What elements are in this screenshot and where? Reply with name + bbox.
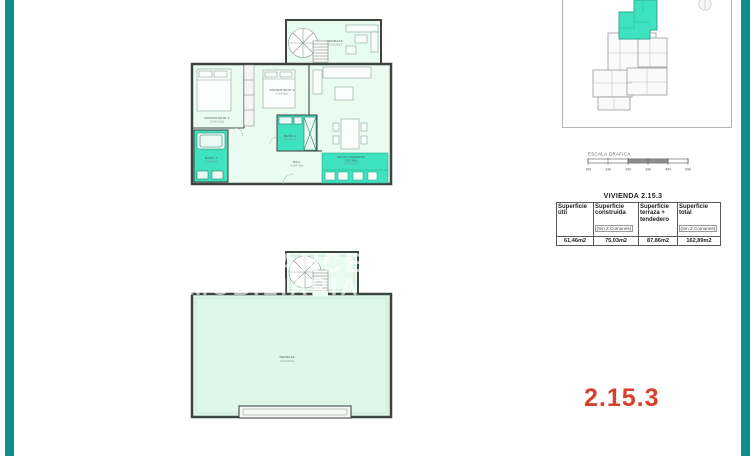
col3-value: 162,89m2 [678, 236, 721, 245]
col3-note: (Sin Z.Comunes) [679, 225, 717, 232]
terrace-area: S.U=74.01m2 [280, 361, 295, 363]
svg-text:2M: 2M [625, 167, 630, 172]
svg-text:5M: 5M [685, 167, 690, 172]
table-header-row: Superficie útil Superficie construida (S… [557, 203, 721, 237]
header-cell: Superficie útil [557, 203, 594, 237]
apartment-floor-plan: TERRAZA S.U=13.85m2 [183, 12, 398, 190]
col3-label: Superficie total [679, 204, 719, 217]
unit-number-label: 2.15.3 [584, 384, 660, 413]
table-value-row: 61,46m2 75,03m2 87,86m2 162,89m2 [557, 236, 721, 245]
salon-area: S.U=24.24m2 [344, 163, 359, 165]
header-cell: Superficie construida (Sin Z.Comunes) [594, 203, 639, 237]
surface-table-block: VIVIENDA 2.15.3 Superficie útil Superfic… [556, 193, 710, 246]
roof-terrace-area: S.U=13.85m2 [328, 45, 343, 47]
graphic-scale: ESCALA GRAFICA 0M 1M 2M 3M 4M 5M [586, 149, 698, 177]
col1-note: (Sin Z.Comunes) [595, 225, 633, 232]
bano1-label: BAÑO 1 [205, 155, 218, 160]
scale-tick-labels: 0M 1M 2M 3M 4M 5M [586, 167, 691, 172]
header-cell: Superficie terraza + tendedero [639, 203, 678, 237]
dormitorio2-label: DORMITORIO 2 [269, 88, 294, 92]
roof-terrace-label: TERRAZA [327, 39, 344, 43]
straight-stair-icon [313, 41, 328, 62]
col0-label: Superficie útil [558, 204, 592, 217]
surface-table: Superficie útil Superficie construida (S… [556, 202, 721, 246]
wardrobe-icon [244, 65, 254, 126]
col0-value: 61,46m2 [557, 236, 594, 245]
planter-icon [239, 406, 351, 418]
svg-text:0M: 0M [586, 167, 591, 172]
bano2-label: BAÑO 2 [284, 133, 297, 138]
right-teal-border [741, 0, 750, 456]
scale-title: ESCALA GRAFICA [588, 152, 631, 157]
key-plan [562, 0, 732, 128]
terrace-label: TERRAZA [279, 355, 296, 359]
left-teal-border [5, 0, 14, 456]
floor-plan-sheet: TERRAZA S.U=13.85m2 [0, 0, 756, 456]
dormitorio1-label: DORMITORIO 1 [204, 116, 229, 120]
dormitorio2-area: S.U=9.08m2 [276, 94, 290, 96]
hall-label: HALL [293, 160, 302, 164]
stair-opening [313, 291, 328, 296]
col1-label: Superficie construida [595, 204, 637, 217]
hall-area: S.U=4.76m2 [291, 166, 305, 168]
col2-label: Superficie terraza + tendedero [640, 204, 676, 223]
salon-label2: COCINA [345, 158, 357, 162]
roof-terrace-plan: TERRAZA S.U=74.01m2 [183, 248, 395, 426]
col2-value: 87,86m2 [639, 236, 678, 245]
svg-text:3M: 3M [645, 167, 650, 172]
svg-text:4M: 4M [665, 167, 670, 172]
table-title: VIVIENDA 2.15.3 [556, 193, 710, 200]
north-indicator-icon [699, 0, 711, 10]
col1-value: 75,03m2 [594, 236, 639, 245]
bano1-area: S.U=4.44m2 [205, 162, 219, 164]
dormitorio1-area: S.U=14.01m2 [210, 122, 225, 124]
straight-stair-icon [313, 270, 328, 294]
header-cell: Superficie total (Sin Z.Comunes) [678, 203, 721, 237]
dormitorio1-bed-icon [197, 69, 231, 111]
svg-text:1M: 1M [605, 167, 610, 172]
bano2-area: S.U=4.07m2 [284, 140, 298, 142]
